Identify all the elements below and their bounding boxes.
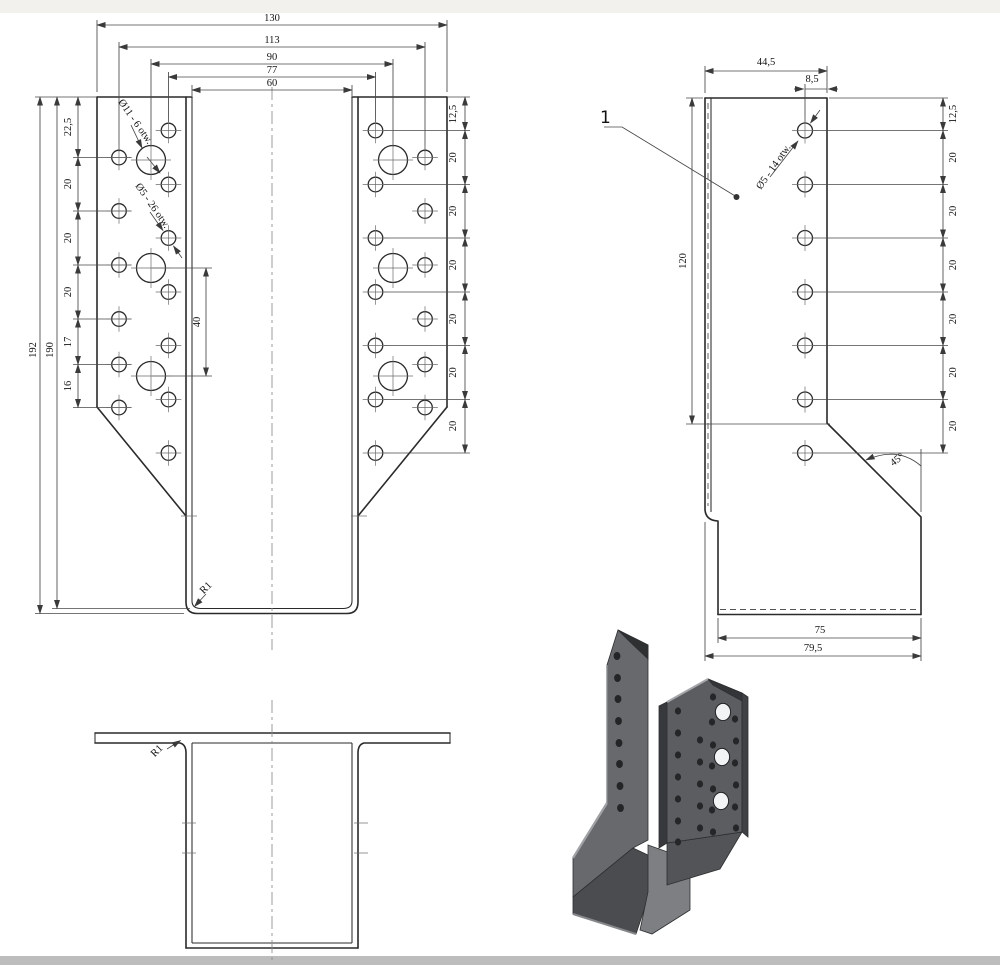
iso-small-hole: [616, 760, 623, 768]
iso-small-hole: [675, 773, 681, 780]
iso-small-hole: [732, 715, 738, 722]
side-chain-5: 20: [948, 367, 959, 378]
chain-left-4: 17: [63, 337, 74, 348]
iso-small-hole: [616, 739, 623, 747]
iso-small-hole: [675, 751, 681, 758]
dim-side-height: 120: [678, 253, 689, 269]
dim-channel-width: 60: [267, 78, 278, 89]
dim-height-inner: 190: [45, 342, 56, 358]
iso-small-hole: [675, 838, 681, 845]
iso-front-plate-edge: [742, 693, 748, 837]
iso-small-hole: [732, 759, 738, 766]
side-chain-0: 12,5: [948, 105, 959, 123]
technical-drawing: 130 113 90 77 60 192 190 22,5 20 20 20 1…: [0, 0, 1000, 965]
iso-small-hole: [710, 693, 716, 700]
chain-left-5: 16: [63, 381, 74, 392]
iso-small-hole: [697, 802, 703, 809]
side-chain-1: 20: [948, 152, 959, 163]
dim-outer-hole-span: 113: [264, 35, 279, 46]
iso-small-hole: [697, 824, 703, 831]
iso-small-hole: [675, 795, 681, 802]
chain-left-3: 20: [63, 287, 74, 298]
chain-right-6: 20: [448, 421, 459, 432]
iso-large-hole: [713, 792, 728, 809]
iso-small-hole: [614, 674, 621, 682]
iso-small-hole: [675, 817, 681, 824]
dim-large-hole-spacing: 40: [192, 317, 203, 328]
part-callout-number: 1: [600, 108, 611, 128]
iso-small-hole: [709, 806, 715, 813]
chain-left-1: 20: [63, 179, 74, 190]
chain-right-3: 20: [448, 260, 459, 271]
iso-small-hole: [697, 736, 703, 743]
iso-large-hole: [715, 703, 730, 720]
scan-band-top: [0, 0, 1000, 13]
dim-hole-edge: 8,5: [805, 74, 818, 85]
iso-small-hole: [733, 781, 739, 788]
dim-large-hole-span: 90: [267, 52, 278, 63]
iso-small-hole: [614, 652, 621, 660]
chain-right-5: 20: [448, 367, 459, 378]
dim-overall-width: 130: [264, 13, 280, 24]
iso-small-hole: [733, 737, 739, 744]
iso-small-hole: [615, 695, 622, 703]
iso-small-hole: [617, 782, 624, 790]
iso-small-hole: [710, 785, 716, 792]
side-chain-4: 20: [948, 314, 959, 325]
side-chain-2: 20: [948, 206, 959, 217]
iso-small-hole: [697, 758, 703, 765]
iso-small-hole: [709, 762, 715, 769]
dim-base-depth: 79,5: [804, 643, 822, 654]
iso-small-hole: [617, 804, 624, 812]
chain-right-4: 20: [448, 314, 459, 325]
chain-left-0: 22,5: [63, 118, 74, 136]
iso-small-hole: [615, 717, 622, 725]
dim-flange-width: 44,5: [757, 57, 775, 68]
chain-right-2: 20: [448, 206, 459, 217]
iso-large-hole: [714, 748, 729, 765]
drawing-page: 130 113 90 77 60 192 190 22,5 20 20 20 1…: [0, 0, 1000, 965]
dim-seat-depth: 75: [815, 625, 826, 636]
iso-small-hole: [733, 824, 739, 831]
iso-small-hole: [675, 707, 681, 714]
iso-small-hole: [710, 828, 716, 835]
iso-small-hole: [710, 741, 716, 748]
iso-front-wall-sliver: [659, 702, 667, 848]
chain-left-2: 20: [63, 233, 74, 244]
paper-background: [0, 0, 1000, 965]
side-chain-3: 20: [948, 260, 959, 271]
chain-right-0: 12,5: [448, 105, 459, 123]
iso-small-hole: [732, 803, 738, 810]
scan-band-bottom: [0, 956, 1000, 965]
iso-small-hole: [697, 780, 703, 787]
chain-right-1: 20: [448, 152, 459, 163]
iso-small-hole: [709, 718, 715, 725]
dim-height-outer: 192: [28, 342, 39, 358]
dim-inner-hole-span: 77: [267, 65, 278, 76]
side-chain-6: 20: [948, 421, 959, 432]
iso-small-hole: [675, 729, 681, 736]
